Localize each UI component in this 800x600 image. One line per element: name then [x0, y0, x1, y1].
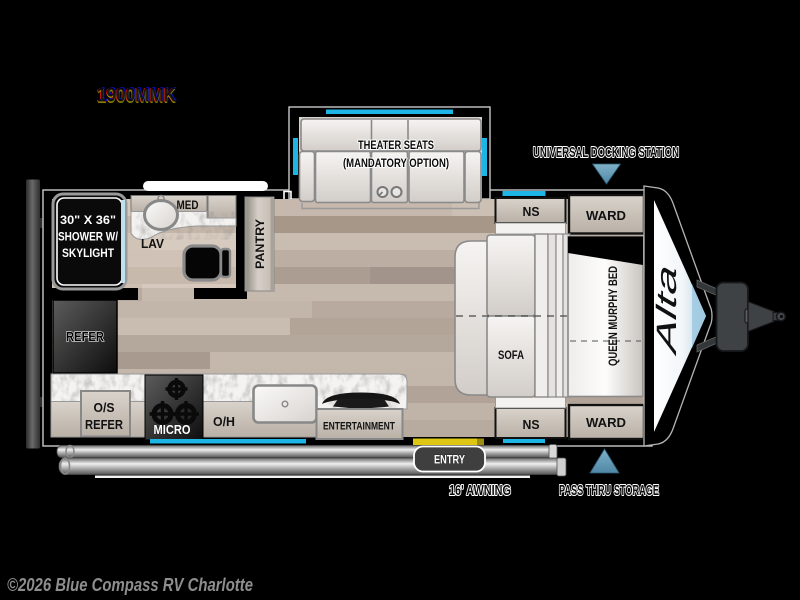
- svg-text:MED: MED: [177, 198, 199, 212]
- svg-text:PANTRY: PANTRY: [255, 219, 267, 269]
- svg-text:O/H: O/H: [213, 415, 235, 429]
- svg-text:WARD: WARD: [586, 208, 626, 223]
- svg-text:ENTRY: ENTRY: [434, 455, 465, 467]
- svg-text:SHOWER W/: SHOWER W/: [58, 230, 119, 244]
- svg-text:LAV: LAV: [141, 237, 165, 251]
- svg-text:MICRO: MICRO: [154, 423, 191, 437]
- svg-text:O/S: O/S: [94, 401, 115, 415]
- svg-text:SOFA: SOFA: [498, 350, 524, 362]
- svg-text:30" X 36": 30" X 36": [60, 213, 116, 227]
- svg-text:NS: NS: [523, 204, 540, 219]
- svg-text:ENTERTAINMENT: ENTERTAINMENT: [323, 421, 395, 433]
- svg-text:1900MMK: 1900MMK: [97, 85, 176, 107]
- svg-text:THEATER SEATS: THEATER SEATS: [358, 140, 434, 152]
- svg-text:16' AWNING: 16' AWNING: [449, 483, 511, 499]
- svg-text:Alta: Alta: [651, 262, 683, 359]
- svg-text:REFER: REFER: [85, 418, 123, 432]
- svg-text:WARD: WARD: [586, 415, 626, 430]
- svg-text:UNIVERSAL DOCKING STATION: UNIVERSAL DOCKING STATION: [533, 145, 679, 161]
- svg-text:SKYLIGHT: SKYLIGHT: [62, 246, 115, 260]
- svg-text:NS: NS: [523, 417, 540, 432]
- svg-text:REFER: REFER: [66, 329, 105, 344]
- svg-text:PASS THRU STORAGE: PASS THRU STORAGE: [559, 483, 659, 499]
- svg-text:©2026 Blue Compass RV Charlott: ©2026 Blue Compass RV Charlotte: [7, 574, 253, 595]
- svg-text:(MANDATORY OPTION): (MANDATORY OPTION): [343, 158, 449, 170]
- svg-text:QUEEN MURPHY BED: QUEEN MURPHY BED: [606, 266, 620, 366]
